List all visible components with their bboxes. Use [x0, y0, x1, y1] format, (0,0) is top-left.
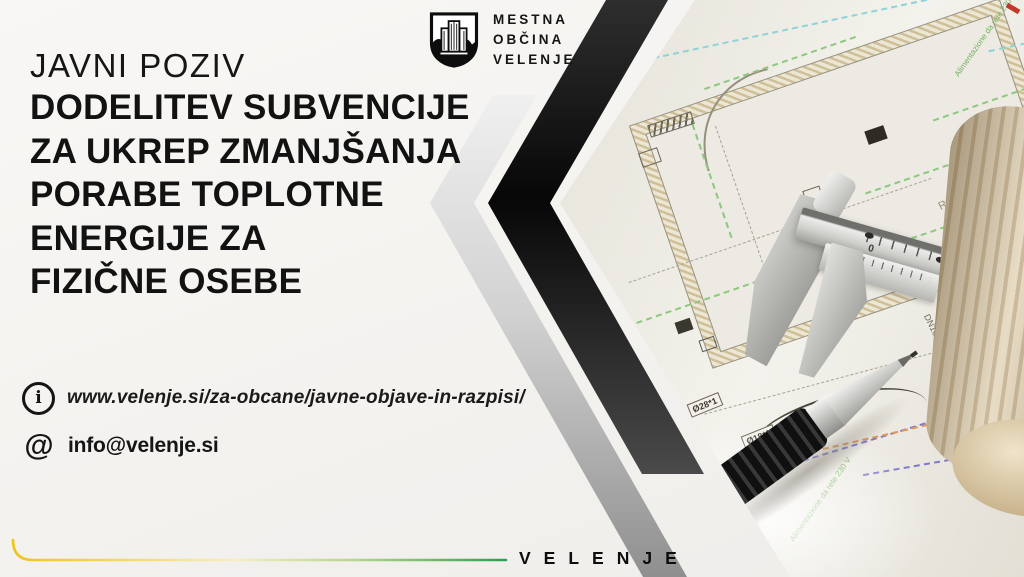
footer-wordmark: VELENJE — [519, 548, 690, 569]
logo-line-1: MESTNA — [493, 10, 576, 30]
website-link[interactable]: www.velenje.si/za-obcane/javne-objave-in… — [67, 387, 525, 409]
logo-line-3: VELENJE — [493, 50, 576, 70]
email-link[interactable]: info@velenje.si — [68, 434, 219, 458]
website-row[interactable]: i www.velenje.si/za-obcane/javne-objave-… — [22, 382, 525, 414]
headline-line: ENERGIJE ZA — [30, 217, 470, 261]
caliper-scale-number: 0 — [867, 243, 875, 255]
drawing-red-mark — [1006, 3, 1021, 14]
headline-line: PORABE TOPLOTNE — [30, 173, 470, 217]
drawing-symbol-box — [674, 318, 693, 335]
headline-line: FIZIČNE OSEBE — [30, 260, 470, 304]
headline-line: DODELITEV SUBVENCIJE — [30, 86, 470, 130]
email-row[interactable]: @ info@velenje.si — [22, 430, 525, 462]
at-icon: @ — [22, 429, 56, 463]
poster-canvas: Alimentazione da rete 230 V Alimentazion… — [0, 0, 1024, 577]
contact-block: i www.velenje.si/za-obcane/javne-objave-… — [22, 382, 525, 478]
logo-line-2: OBČINA — [493, 30, 576, 50]
pencil-lead — [910, 351, 918, 358]
info-icon: i — [22, 382, 55, 415]
headline-line: ZA UKREP ZMANJŠANJA — [30, 130, 470, 174]
headline-kicker: JAVNI POZIV — [30, 46, 470, 86]
headline-block: JAVNI POZIV DODELITEV SUBVENCIJE ZA UKRE… — [30, 46, 470, 304]
